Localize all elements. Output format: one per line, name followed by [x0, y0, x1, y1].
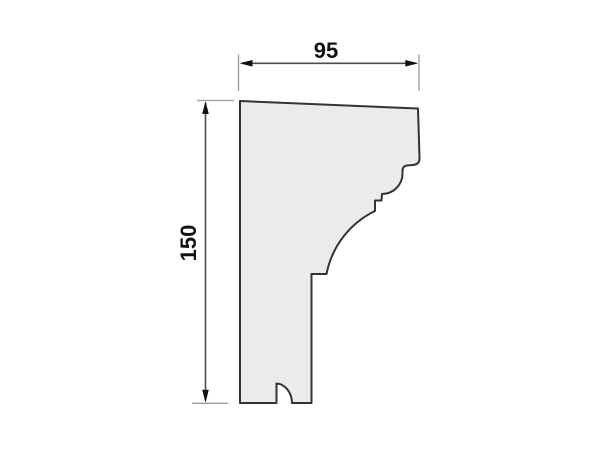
arrow-down-icon [202, 390, 209, 403]
molding-profile-shape [240, 101, 420, 403]
width-dimension: 95 [239, 38, 420, 91]
technical-drawing: 95 150 [0, 0, 600, 450]
height-dimension-label: 150 [176, 225, 201, 262]
height-dimension: 150 [176, 101, 234, 404]
width-dimension-label: 95 [314, 38, 338, 63]
arrow-up-icon [202, 101, 209, 114]
profile-drawing-canvas: 95 150 [0, 0, 600, 450]
arrow-right-icon [405, 60, 418, 67]
arrow-left-icon [240, 60, 253, 67]
